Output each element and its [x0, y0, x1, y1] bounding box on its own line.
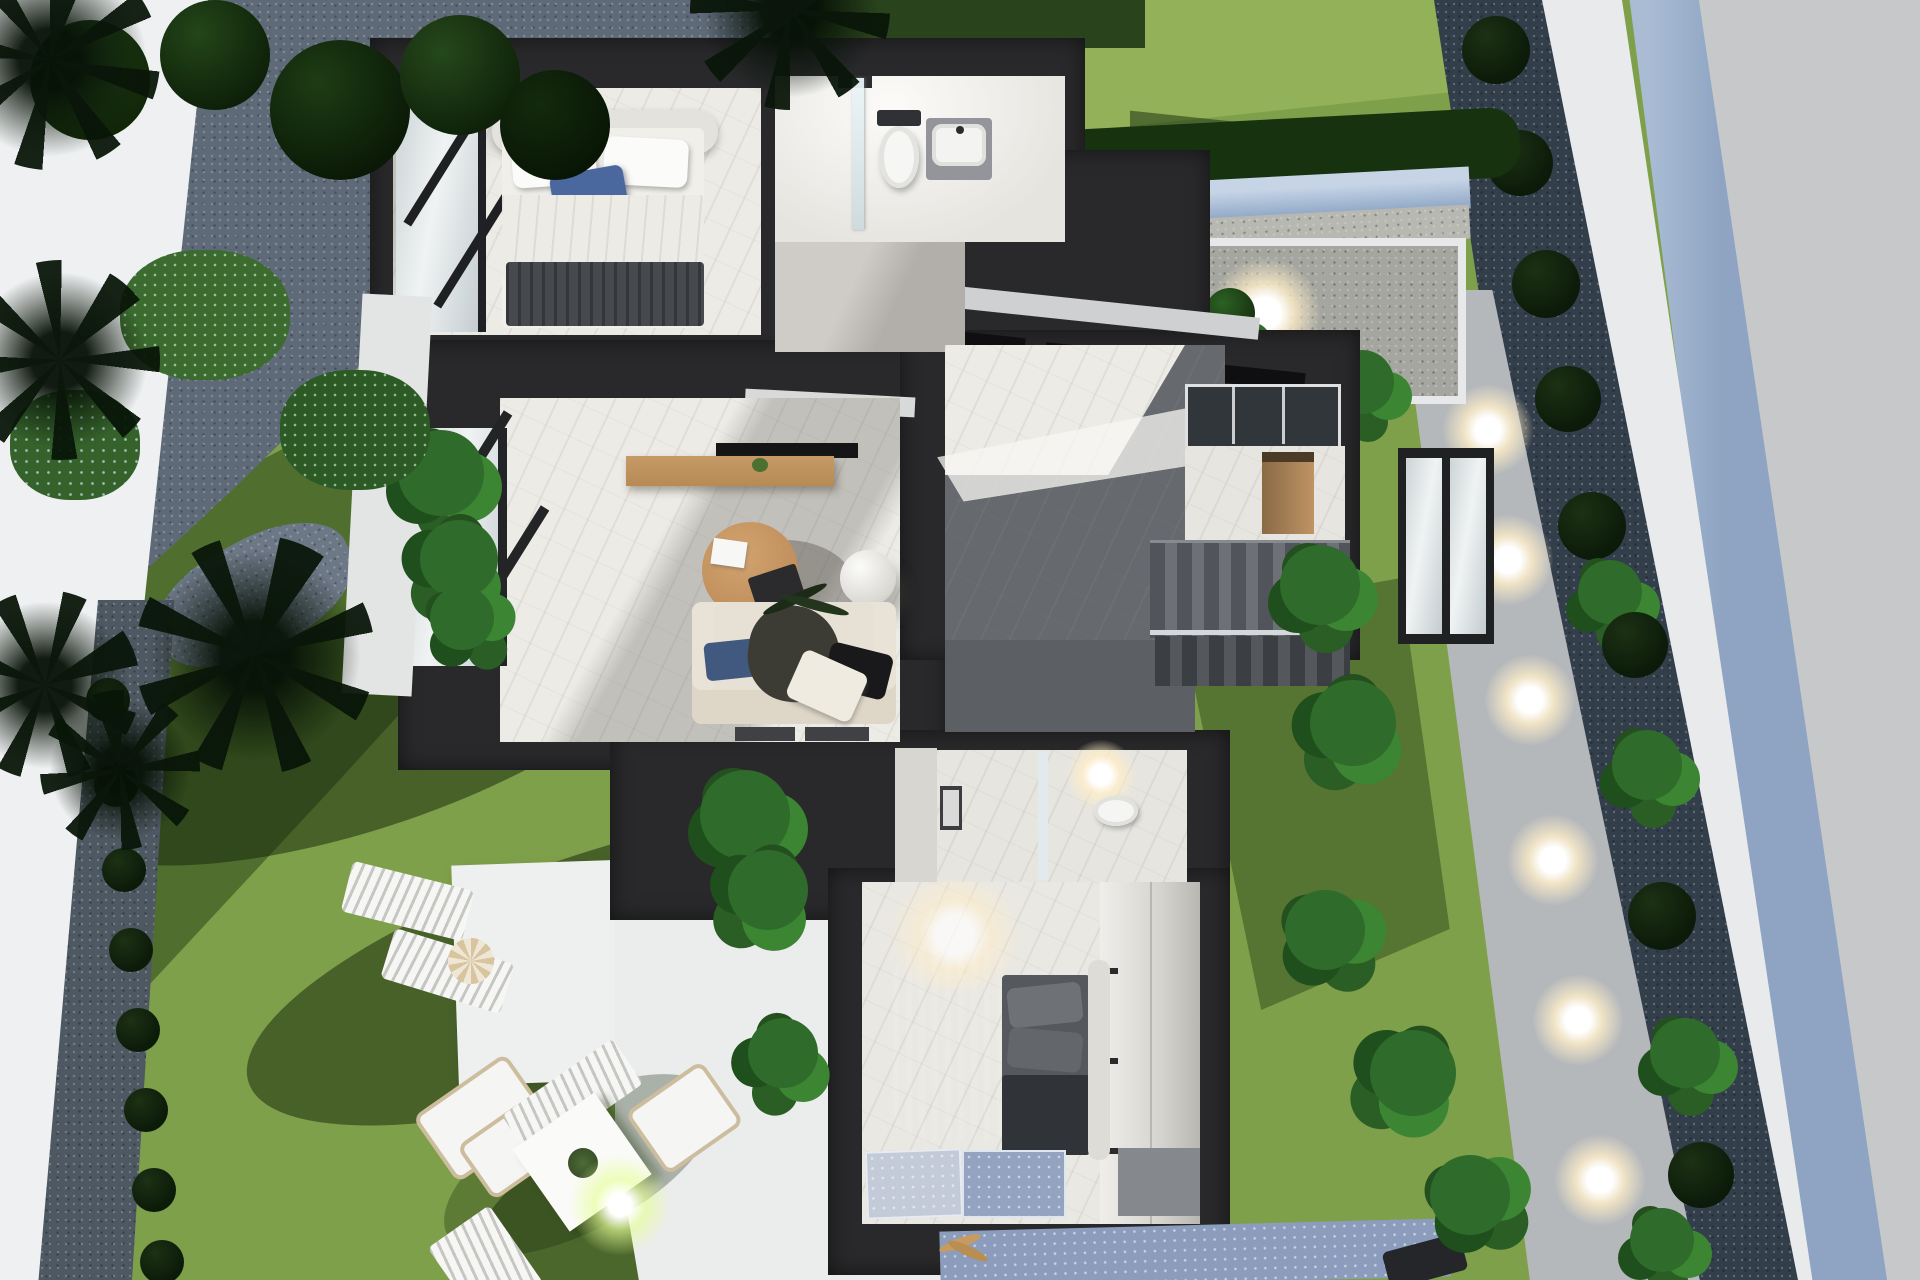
shrub: [1650, 1018, 1720, 1088]
bush: [1512, 250, 1580, 318]
path-light: [1508, 815, 1598, 905]
lawn-tree: [1280, 545, 1360, 625]
bush: [102, 848, 146, 892]
lawn-tree: [1354, 1014, 1471, 1131]
curtain-rack: [893, 945, 1008, 1140]
bush: [1558, 492, 1626, 560]
bush: [124, 1088, 168, 1132]
wood-cabinet: [1262, 452, 1314, 534]
bush: [109, 928, 153, 972]
bush: [132, 1168, 176, 1212]
wc-toilet: [1094, 796, 1138, 826]
bed2-pillow: [1006, 981, 1084, 1029]
bush: [1602, 612, 1668, 678]
bed2-headboard: [1088, 960, 1110, 1160]
skylight-mullion: [1282, 386, 1285, 444]
window-frame: [478, 104, 486, 332]
pendant-lamp: [840, 550, 896, 606]
floorplan-render: [0, 0, 1920, 1280]
faucet: [956, 126, 964, 134]
skylight-mullion: [1232, 386, 1235, 444]
sidewing-window-glass: [1450, 458, 1486, 634]
garden-bush: [160, 0, 270, 110]
sideboard: [626, 456, 834, 486]
path-light: [1485, 655, 1575, 745]
floor-mat: [805, 727, 869, 741]
bush: [1628, 882, 1696, 950]
courtyard-plant-large: [700, 770, 790, 860]
wc-basin-top: [943, 790, 959, 826]
toilet-cistern: [877, 110, 921, 126]
shrub: [1630, 1208, 1694, 1272]
sideboard-plant: [752, 458, 768, 472]
bush: [140, 1240, 184, 1280]
bathroom-corridor-floor: [775, 242, 965, 352]
wc-corridor: [895, 748, 937, 884]
window-frame: [498, 428, 507, 666]
floor-mat: [735, 727, 795, 741]
bed2-pillow: [1006, 1027, 1083, 1073]
path-light: [1555, 1135, 1645, 1225]
garden-bush: [270, 40, 410, 180]
staircase-lower-flight: [1155, 636, 1350, 686]
glass-balustrade: [1150, 630, 1350, 635]
toilet: [879, 126, 919, 188]
magazine: [710, 538, 747, 568]
garden-bush: [500, 70, 610, 180]
parasol: [448, 938, 494, 984]
bed2-duvet: [1002, 1075, 1090, 1155]
path-light: [1533, 975, 1623, 1065]
skylight: [1185, 384, 1341, 452]
rug: [962, 1150, 1066, 1218]
shrub: [1612, 730, 1682, 800]
shower-tray-gray: [1118, 1148, 1200, 1216]
sidewing-window-glass: [1406, 458, 1442, 634]
bush: [116, 1008, 160, 1052]
garden-light: [570, 1155, 670, 1255]
bush: [1668, 1142, 1734, 1208]
bed1-dark-blanket: [506, 262, 704, 326]
bush: [1462, 16, 1530, 84]
rug: [865, 1148, 963, 1219]
shower-glass-screen: [852, 78, 864, 230]
flowering-shrub: [280, 370, 430, 490]
wc-glass-screen: [1038, 752, 1048, 880]
wc-floor: [937, 750, 1187, 884]
bush: [1535, 366, 1601, 432]
